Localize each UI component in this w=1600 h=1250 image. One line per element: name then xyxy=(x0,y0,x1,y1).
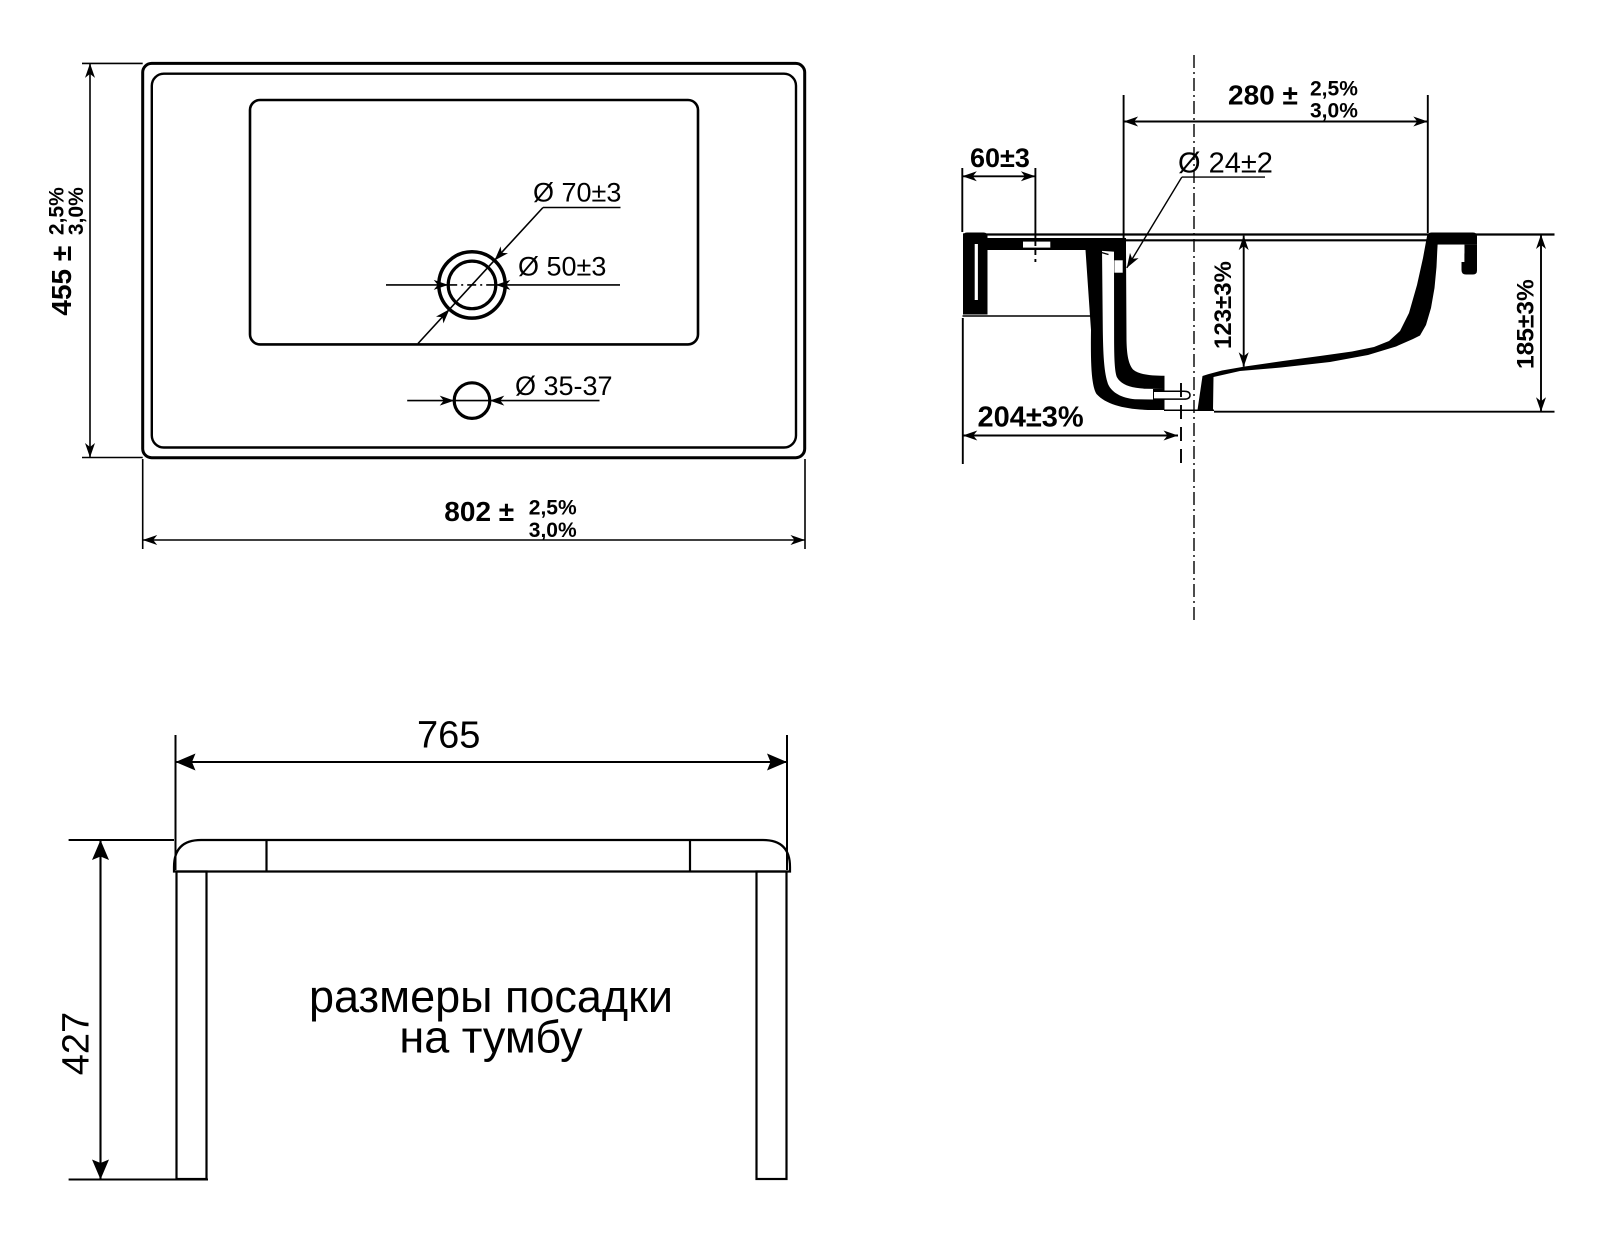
svg-text:Ø 35-37: Ø 35-37 xyxy=(515,371,613,401)
svg-text:280 ±: 280 ± xyxy=(1228,80,1298,111)
svg-text:Ø 24±2: Ø 24±2 xyxy=(1178,148,1273,180)
svg-text:2,5%: 2,5% xyxy=(1310,78,1358,101)
svg-text:3,0%: 3,0% xyxy=(1310,100,1358,123)
svg-text:455 ±: 455 ± xyxy=(46,246,77,316)
svg-text:Ø 50±3: Ø 50±3 xyxy=(518,252,606,282)
svg-text:185±3%: 185±3% xyxy=(1513,279,1540,369)
svg-text:3,0%: 3,0% xyxy=(65,187,88,235)
svg-text:765: 765 xyxy=(417,715,480,757)
svg-text:на тумбу: на тумбу xyxy=(399,1012,583,1063)
svg-text:802 ±: 802 ± xyxy=(444,496,514,527)
svg-text:60±3: 60±3 xyxy=(970,143,1030,173)
svg-text:204±3%: 204±3% xyxy=(978,402,1084,434)
svg-text:427: 427 xyxy=(56,1012,98,1075)
svg-text:2,5%: 2,5% xyxy=(529,497,577,520)
svg-text:3,0%: 3,0% xyxy=(529,519,577,542)
svg-text:123±3%: 123±3% xyxy=(1210,261,1237,349)
svg-text:Ø 70±3: Ø 70±3 xyxy=(533,178,621,208)
